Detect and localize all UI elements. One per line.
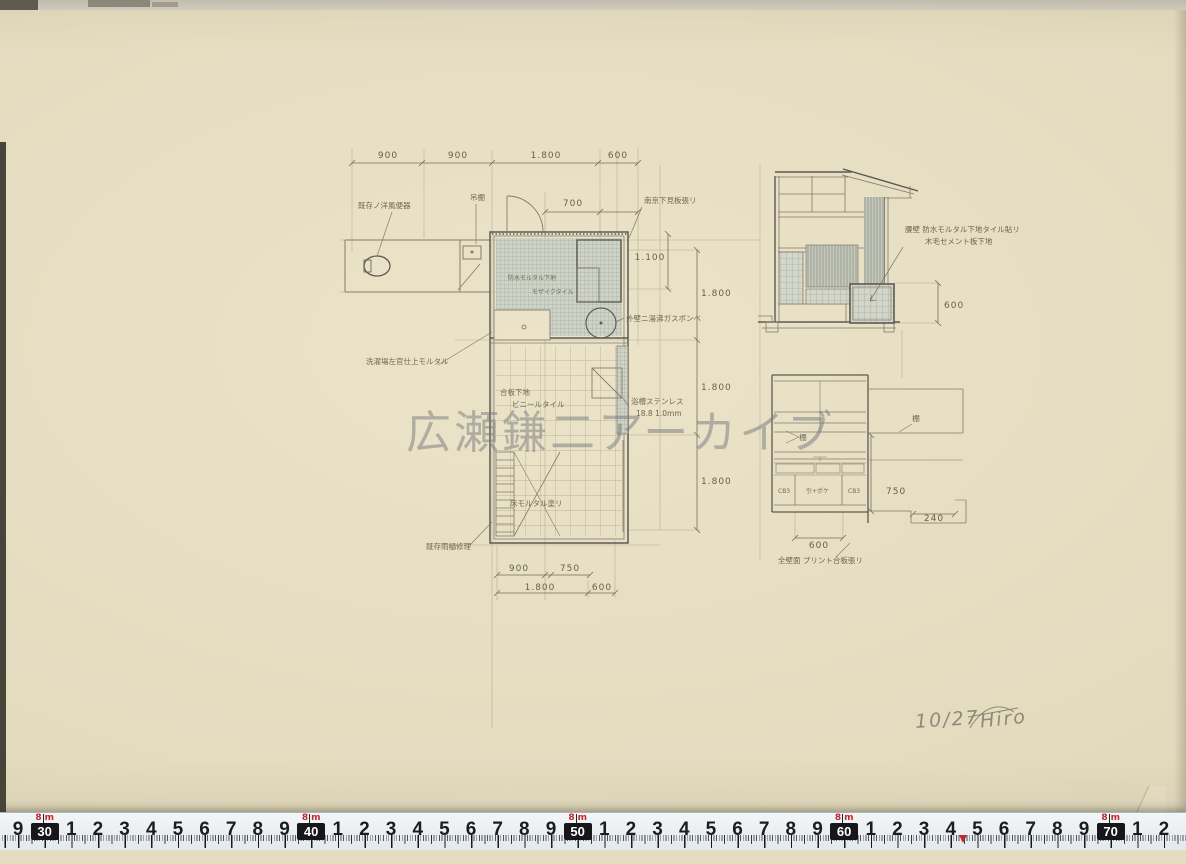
ruler-decimeter-40: 8m40 [296,813,326,840]
label-existing-repair: 既存雨樋修理 [426,541,471,551]
dim-cabinet-750: 750 [886,487,906,497]
ruler-number: 3 [379,819,403,841]
ruler-number: 6 [992,819,1016,841]
paper-below-ruler [0,850,1186,864]
ruler-number: 1 [59,819,83,841]
dim-top-900b: 900 [448,151,468,161]
window-grid [779,252,803,304]
ruler-number: 9 [539,819,563,841]
ruler-number: 1 [326,819,350,841]
ruler-number: 8 [512,819,536,841]
ruler-number: 1 [859,819,883,841]
ruler-number: 2 [885,819,909,841]
scanner-edge-top [0,0,1186,10]
label-mosaic-tile: モザイクタイル [532,288,574,296]
ruler-decimeter-60: 8m60 [829,813,859,840]
dim-cabinet-240: 240 [924,514,944,524]
footer-notes: 10/27 Hiro [914,706,1028,733]
ruler-number: 5 [699,819,723,841]
ruler-number: 4 [672,819,696,841]
bathtub-icon [850,284,894,323]
ruler-number: 7 [1019,819,1043,841]
archive-watermark: 広瀬鎌二アーカイブ [406,396,835,461]
section-dim-600 [935,280,941,326]
section-elevation: 腰壁 防水モルタル下地タイル貼リ 木毛セメント板下地 600 [758,169,1020,332]
ruler-number: 5 [965,819,989,841]
ruler-decimeter-50: 8m50 [563,813,593,840]
ruler-number: 2 [352,819,376,841]
ruler-number: 4 [406,819,430,841]
ruler-number: 2 [619,819,643,841]
scan-smudge [0,0,38,10]
dim-bottom-900: 900 [509,564,529,574]
ruler-number: 7 [752,819,776,841]
ruler-pointer-arrow [959,835,967,843]
paper-corner-fold [1120,786,1166,814]
label-cabinet-code-3: CB3 [848,488,860,495]
ruler-number: 1 [592,819,616,841]
ruler-decimeter-30: 8m30 [30,813,60,840]
label-woodwool-board: 木毛セメント板下地 [925,236,993,246]
ruler-number: 7 [486,819,510,841]
ruler-number: 2 [1152,819,1176,841]
ruler-number: 3 [912,819,936,841]
ruler-number: 6 [459,819,483,841]
ruler-number: 9 [6,819,30,841]
label-laundry-mortar: 洗濯場左官仕上モルタル [366,356,449,366]
scan-smudge [88,0,150,7]
dim-top-1800: 1.800 [531,151,562,161]
ruler-number: 5 [432,819,456,841]
ruler-number: 1 [1125,819,1149,841]
scanned-drawing-sheet: 900 900 1.800 600 700 1.100 1.800 1.800 … [0,0,1186,864]
dim-v-1800c: 1.800 [701,477,732,487]
label-print-plywood: 全壁面 プリント合板張リ [778,555,863,565]
ruler-decimeter-70: 8m70 [1096,813,1126,840]
dim-top-900a: 900 [378,151,398,161]
dim-cabinet-600: 600 [809,541,829,551]
label-siding: 南京下見板張リ [644,195,697,205]
ruler-number: 9 [806,819,830,841]
label-shelf-2: 棚 [912,413,920,423]
floor-plan: 900 900 1.800 600 700 1.100 1.800 1.800 … [345,151,732,596]
ruler-number: 4 [139,819,163,841]
dim-v-1800a: 1.800 [701,289,732,299]
ruler-number: 3 [646,819,670,841]
dim-bottom-1800: 1.800 [525,583,556,593]
dim-bottom-600: 600 [592,583,612,593]
date-note: 10/27 [914,707,980,733]
ruler-number: 9 [1072,819,1096,841]
measuring-ruler: 98m301234567898m401234567898m50123456789… [0,812,1186,851]
label-waterproof-mortar: 防水モルタル下地 [508,274,556,282]
ruler-number: 6 [726,819,750,841]
label-gas-bottle: 外壁ニ湯沸ガスボンベ [626,313,701,323]
signature: Hiro [979,706,1028,733]
ruler-number: 7 [219,819,243,841]
door-leaf [494,310,550,340]
label-cabinet-code-2: 引+ポケ [806,487,829,495]
dim-section-600: 600 [944,301,964,311]
ruler-number: 5 [166,819,190,841]
paper-edge-shadow [1174,10,1186,812]
label-hanging-shelf: 吊棚 [470,192,485,202]
ruler-number: 2 [86,819,110,841]
scanner-edge-left [0,142,6,812]
ruler-number: 8 [1045,819,1069,841]
door-arc [507,196,543,232]
scan-smudge [152,2,178,7]
label-cabinet-code-1: CB3 [778,488,790,495]
label-wall-tile: 腰壁 防水モルタル下地タイル貼リ [905,224,1020,234]
dim-bottom-750: 750 [560,564,580,574]
ruler-number: 9 [273,819,297,841]
dim-v-1800b: 1.800 [701,383,732,393]
ruler-number: 8 [246,819,270,841]
shaded-panel [806,245,858,287]
dim-top-600: 600 [608,151,628,161]
ruler-number: 3 [113,819,137,841]
label-existing-toilet: 既存ノ洋風便器 [358,200,411,210]
ruler-number: 6 [193,819,217,841]
dim-door-700: 700 [563,199,583,209]
toilet-icon [364,256,390,276]
label-floor-mortar: 床モルタル塗リ [510,498,563,508]
dim-1100: 1.100 [635,253,666,263]
ruler-number: 8 [779,819,803,841]
toilet-annex [345,240,490,292]
